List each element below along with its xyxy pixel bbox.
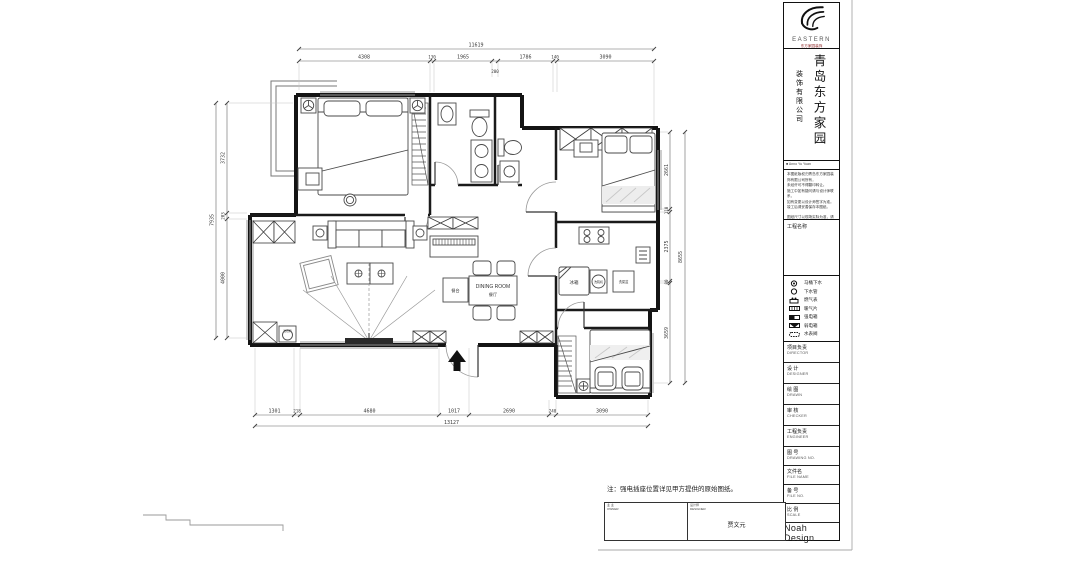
- bathroom2-fixtures: [498, 139, 522, 182]
- dim-top-total: 11619: [468, 43, 483, 49]
- row-drawn: 绘 图 DRAWN: [784, 384, 839, 405]
- drawing-sheet: 冰箱 洗碗机 洗菜盆: [0, 0, 1074, 576]
- dim-left-total: 7935: [210, 214, 216, 226]
- tagline: ■ Anno Yu Yuan: [784, 161, 839, 170]
- noah-design-brand: Noah Design: [784, 523, 839, 543]
- dining-room-label-en: DINING ROOM: [476, 284, 510, 290]
- dim-bottom-1: 1301: [268, 409, 280, 415]
- project-name-label: 工程名称: [787, 224, 807, 230]
- dim-bottom-3: 4680: [363, 409, 375, 415]
- water-valve-icon: [788, 331, 801, 338]
- rug: [300, 256, 338, 293]
- legend-row-strong-electric-box: 强电箱: [788, 313, 835, 321]
- brand-name: EASTERN: [784, 37, 839, 43]
- fridge-label: 冰箱: [570, 279, 579, 286]
- plan-note: 注：强电插座位置详见甲方提供的原始图纸。: [607, 483, 737, 493]
- sofa: [313, 221, 427, 248]
- row-engineer: 工程负责 ENGINEER: [784, 426, 839, 447]
- dim-top-4: 1786: [519, 55, 531, 61]
- dim-right-1: 2661: [664, 164, 670, 176]
- legend-row-weak-electric-box: 弱电箱: [788, 322, 835, 330]
- dim-bottom-2: 218: [293, 409, 301, 414]
- wardrobe-master: [412, 103, 428, 185]
- entry-arrow: [448, 350, 466, 371]
- brand-subtitle: 东方家园装饰: [787, 43, 837, 48]
- legend-row-gas-meter: 燃气表: [788, 296, 835, 304]
- sink-label: 洗菜盆: [619, 279, 629, 284]
- owner-label-en: OWNER: [607, 508, 619, 512]
- row-file-name: 文件名 FILE NAME: [784, 466, 839, 485]
- dim-top-2: 130: [428, 55, 436, 60]
- owner-sign-box: 业 主 OWNER: [604, 502, 688, 541]
- dim-right-total: 8655: [678, 251, 684, 263]
- legend-section: 马桶下水 下水管 燃气表 暖气片 强电箱 弱电箱 水表阀: [784, 276, 839, 342]
- row-designer: 设 计 DESIGNER: [784, 363, 839, 384]
- kitchen-washer-label: 洗碗机: [594, 279, 603, 284]
- dim-top-6: 3090: [599, 55, 611, 61]
- notes-section: 本图纸版权归青岛东方家园装饰有限公司所有， 未经许可不得翻印转让。 施工中如有疑…: [784, 170, 839, 220]
- dim-left-3: 4000: [221, 272, 227, 284]
- legend-row-radiator: 暖气片: [788, 305, 835, 313]
- legend-row-toilet-drain: 马桶下水: [788, 279, 835, 287]
- piano: [430, 236, 478, 257]
- dim-right-2: 110: [664, 206, 669, 214]
- note-line: 本图纸版权归青岛东方家园装饰有限公司所有，: [787, 172, 836, 183]
- project-name-box: 工程名称: [784, 220, 839, 276]
- dim-bottom-7: 3090: [596, 409, 608, 415]
- dining-room-label-cn: 餐厅: [489, 291, 497, 298]
- coffee-tables: [347, 263, 393, 284]
- toilet-drain-icon: [788, 280, 801, 287]
- dim-right-3: 2375: [664, 240, 670, 252]
- dim-right-5: 3659: [664, 327, 670, 339]
- row-file-no: 备 号 FILE NO.: [784, 485, 839, 504]
- row-director: 项目负责 DIRECTOR: [784, 342, 839, 363]
- dim-bottom-6: 240: [549, 409, 557, 414]
- company-name-section: 装饰有限公司 青岛东方家园: [784, 49, 839, 161]
- dim-right-4: 80: [664, 279, 669, 285]
- title-block-panel: EASTERN 东方家园装饰 装饰有限公司 青岛东方家园 ■ Anno Yu Y…: [783, 2, 840, 541]
- gas-meter-icon: [788, 297, 801, 304]
- dim-left-1: 3732: [221, 152, 227, 164]
- wardrobe-bedroom3: [558, 336, 576, 393]
- master-bed: [318, 98, 408, 195]
- legend-row-water-valve: 水表阀: [788, 330, 835, 338]
- drain-pipe-icon: [788, 288, 801, 295]
- note-line: 施工中如有疑问请与设计师联系，: [787, 189, 836, 200]
- dim-top-inner: 200: [491, 69, 499, 74]
- bedroom3-furniture: [577, 330, 650, 393]
- radiator-icon: [788, 305, 801, 312]
- row-checker: 审 核 CHECKER: [784, 405, 839, 426]
- dim-top-5: 140: [551, 55, 559, 60]
- signature-tables: 业 主 OWNER 设计师 DESIGNER 贾文元: [604, 502, 786, 541]
- dim-bottom-total: 13127: [444, 420, 459, 426]
- floor-plan-canvas: 冰箱 洗碗机 洗菜盆: [0, 0, 1074, 576]
- signature-name: 贾文元: [688, 520, 785, 529]
- dim-bottom-5: 2690: [503, 409, 515, 415]
- corner-washer-label: 洗衣机: [283, 329, 292, 333]
- dim-left-2: 203: [221, 212, 226, 220]
- bedroom2-furniture: [574, 133, 655, 212]
- dim-top-3: 1965: [457, 55, 469, 61]
- bathroom1-fixtures: [438, 103, 492, 182]
- dim-top-1: 4308: [358, 55, 370, 61]
- eastern-swirl-logo-icon: [795, 5, 829, 31]
- dim-bottom-4: 1017: [448, 409, 460, 415]
- company-name-main: 青岛东方家园: [810, 54, 829, 160]
- weak-electric-box-icon: [788, 322, 801, 329]
- row-drawing-no: 图 号 DRAWING NO.: [784, 447, 839, 466]
- legend-row-drain-pipe: 下水管: [788, 288, 835, 296]
- designer-label-en: DESIGNER: [690, 508, 706, 512]
- designer-sign-box: 设计师 DESIGNER 贾文元: [688, 502, 786, 541]
- cabinet-label: 餐台: [451, 287, 459, 294]
- strong-electric-box-icon: [788, 314, 801, 321]
- logo-section: EASTERN 东方家园装饰: [784, 3, 839, 49]
- company-name-sub: 装饰有限公司: [795, 70, 805, 160]
- row-scale: 比 例 SCALE: [784, 504, 839, 523]
- note-line: 竣工后请妥善保存本图纸。: [787, 205, 836, 211]
